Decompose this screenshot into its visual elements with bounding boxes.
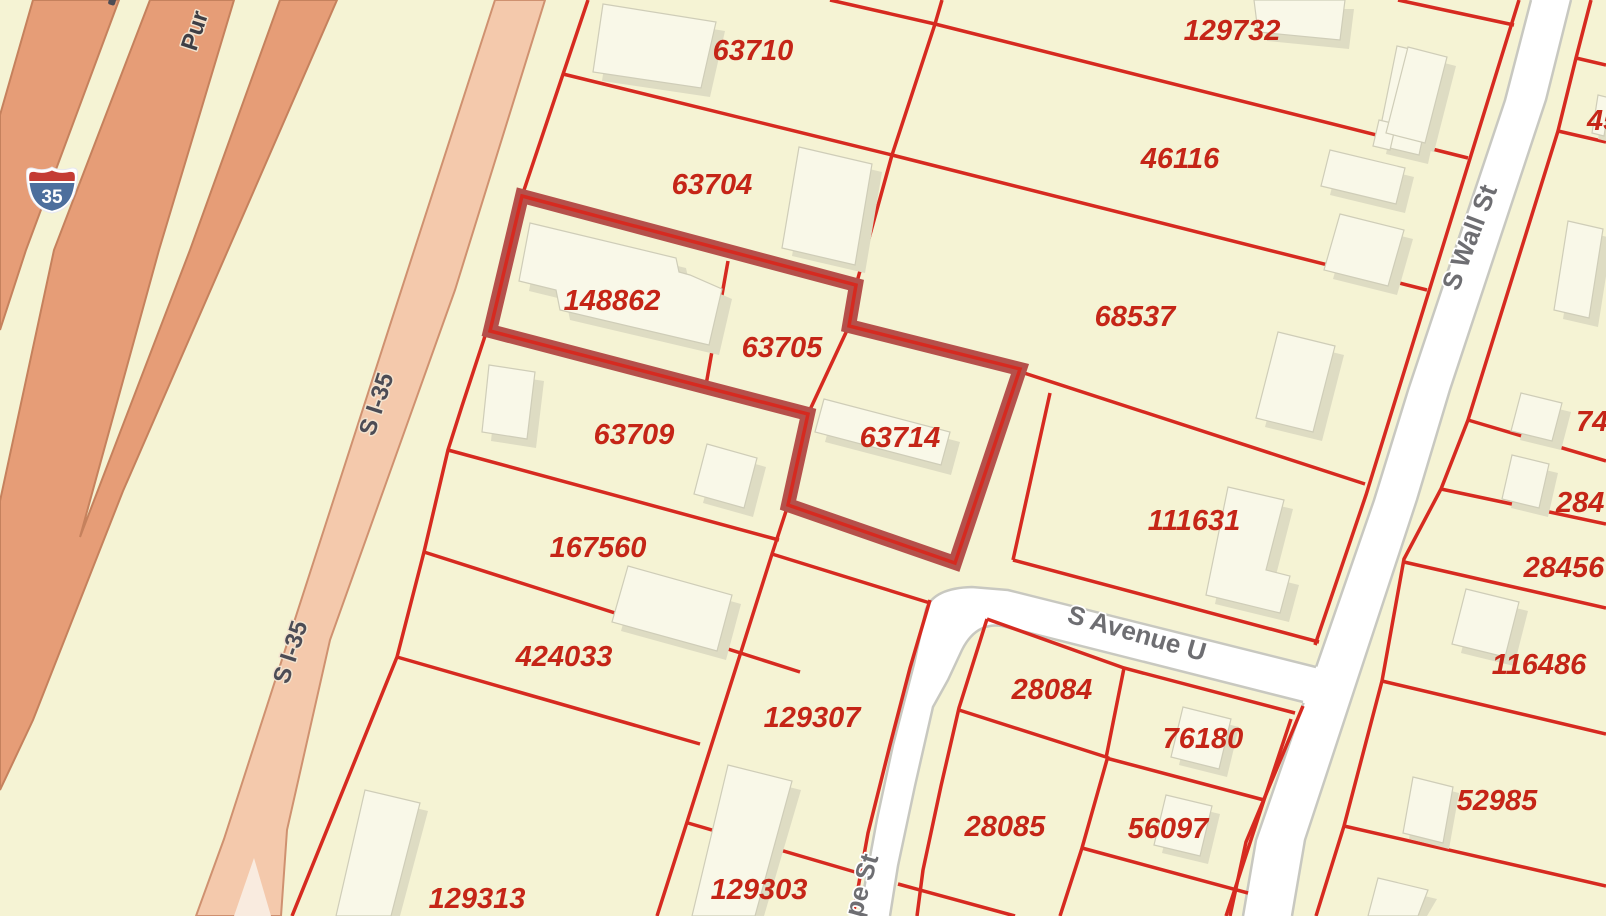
svg-text:68537: 68537 — [1095, 301, 1178, 333]
svg-text:35: 35 — [41, 187, 63, 208]
svg-text:7411: 7411 — [1576, 406, 1606, 438]
svg-text:63705: 63705 — [742, 332, 824, 364]
svg-text:46116: 46116 — [1140, 143, 1220, 175]
svg-text:167560: 167560 — [550, 532, 647, 564]
svg-text:129313: 129313 — [429, 883, 526, 915]
svg-text:28456: 28456 — [1523, 552, 1606, 584]
svg-text:76180: 76180 — [1163, 723, 1244, 755]
svg-text:45: 45 — [1586, 105, 1606, 137]
svg-text:63704: 63704 — [672, 169, 753, 201]
svg-text:129732: 129732 — [1184, 15, 1281, 47]
svg-text:56097: 56097 — [1128, 813, 1211, 845]
svg-text:116486: 116486 — [1492, 649, 1587, 681]
svg-text:129307: 129307 — [764, 702, 863, 734]
svg-text:28085: 28085 — [964, 811, 1047, 843]
svg-text:63709: 63709 — [594, 419, 675, 451]
svg-text:111631: 111631 — [1148, 505, 1240, 537]
svg-text:63714: 63714 — [860, 422, 941, 454]
svg-text:63710: 63710 — [713, 35, 794, 67]
svg-text:424033: 424033 — [515, 641, 613, 673]
svg-text:129303: 129303 — [711, 874, 808, 906]
svg-text:28084: 28084 — [1011, 674, 1093, 706]
svg-text:148862: 148862 — [564, 285, 661, 317]
svg-text:52985: 52985 — [1457, 785, 1539, 817]
svg-text:28471: 28471 — [1555, 487, 1606, 519]
